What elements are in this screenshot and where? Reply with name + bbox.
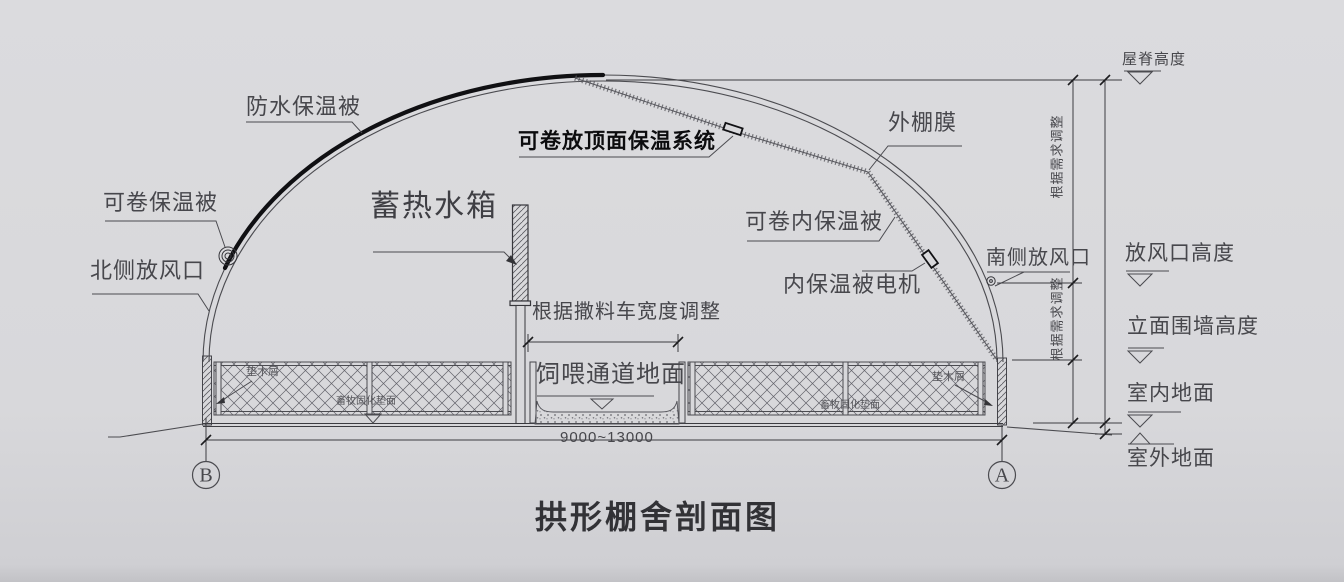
callout-roof-insulation-system: 可卷放顶面保温系统 [518,131,716,152]
elevation-outdoor-ground: 室外地面 [1127,448,1215,469]
rolled-quilt-spiral [219,247,237,265]
elevation-indoor-ground: 室内地面 [1127,383,1215,404]
heat-tank [510,205,531,424]
drawing-title: 拱形棚舍剖面图 [535,492,780,538]
pen-label-cured-bedding-right: 畜牧固化垫面 [820,401,880,411]
quilt-motor-box [922,250,938,268]
callout-south-vent: 南侧放风口 [986,248,1091,268]
elevation-facade-wall-height: 立面围墙高度 [1127,316,1259,337]
callout-inner-quilt-motor: 内保温被电机 [783,274,921,296]
dimension-span-text: 9000~13000 [560,430,654,445]
elevation-ridge-height: 屋脊高度 [1122,52,1186,67]
elevation-vent-height: 放风口高度 [1125,243,1235,264]
callout-feeding-aisle: 饲喂通道地面 [536,363,686,387]
callout-heat-tank: 蓄热水箱 [370,192,498,222]
axis-bubble-b: B [199,465,212,488]
note-adjust-as-needed-upper: 根据需求调整 [1047,127,1066,199]
axis-bubbles [193,462,1016,489]
callout-outer-film: 外棚膜 [888,112,957,134]
pen-label-cured-bedding-left: 畜牧固化垫面 [336,397,396,407]
sawdust-arrowhead-right [984,399,993,406]
note-adjust-as-needed-lower: 根据需求调整 [1047,289,1066,361]
axis-bubble-a: A [995,465,1009,488]
pen-label-sawdust-right: 垫木屑 [932,372,965,383]
callout-waterproof-quilt: 防水保温被 [246,96,361,118]
callout-north-vent: 北侧放风口 [90,260,205,282]
pen-label-sawdust-left: 垫木屑 [246,367,279,378]
roller-box-top [723,123,742,135]
callout-rollable-inner-quilt: 可卷内保温被 [745,211,883,233]
callout-rollable-quilt: 可卷保温被 [103,192,218,214]
south-vent-roller [987,277,995,285]
arched-shed-section-drawing: 防水保温被 可卷保温被 北侧放风口 蓄热水箱 可卷放顶面保温系统 外棚膜 可卷内… [0,0,1344,582]
callout-adjust-feed-truck: 根据撒料车宽度调整 [532,302,721,322]
